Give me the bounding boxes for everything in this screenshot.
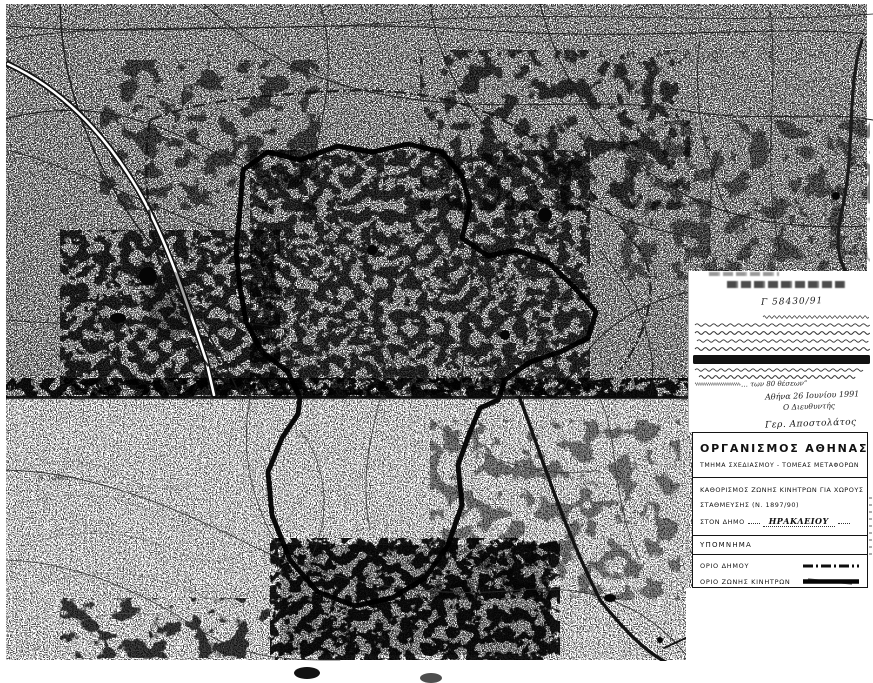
handwritten-fragment: … των 80 θέσεων” — [741, 379, 808, 388]
project-title-line2: ΣΤΑΘΜΕΥΣΗΣ (Ν. 1897/90) — [700, 501, 860, 509]
legend-item-municipal-boundary: ΟΡΙΟ ΔΗΜΟΥ — [700, 562, 860, 570]
illegible-stamp — [727, 281, 845, 288]
legend-org-section: ΟΡΓΑΝΙΣΜΟΣ ΑΘΗΝΑΣ ΤΜΗΜΑ ΣΧΕΔΙΑΣΜΟΥ - ΤΟΜ… — [693, 433, 867, 477]
project-title-line1: ΚΑΘΟΡΙΣΜΟΣ ΖΩΝΗΣ ΚΙΝΗΤΡΩΝ ΓΙΑ ΧΩΡΟΥΣ — [700, 486, 860, 494]
dotted-leader — [838, 516, 850, 524]
dash-dot-line-sample — [802, 562, 860, 570]
left-margin — [0, 0, 6, 683]
sheet-seam-line — [0, 396, 690, 399]
blacked-out-line — [693, 355, 870, 364]
note-date: Αθήνα 26 Ιουνίου 1991 — [765, 389, 860, 401]
illegible-stamp-line — [709, 272, 779, 276]
district-label-amaroussi: Α Μ Α Ρ Ο Υ Σ Ι — [598, 50, 807, 61]
legend-heading-section: ΥΠΟΜΝΗΜΑ — [693, 536, 867, 554]
director-signature: Γερ. Αποστολάτος — [765, 417, 857, 430]
solid-thick-line-sample — [802, 577, 860, 586]
protocol-number: Γ 58430/91 — [761, 296, 823, 308]
legend-item-label: ΟΡΙΟ ΔΗΜΟΥ — [700, 562, 749, 570]
note-signoff: Ο Διευθυντής — [783, 401, 835, 412]
dotted-leader — [748, 516, 760, 524]
legend-item-label: ΟΡΙΟ ΖΩΝΗΣ ΚΙΝΗΤΡΩΝ — [700, 578, 790, 586]
edge-tick-marks — [869, 497, 872, 557]
organization-title: ΟΡΓΑΝΙΣΜΟΣ ΑΘΗΝΑΣ — [700, 442, 860, 455]
scanned-map-sheet: Α Μ Α Ρ Ο Υ Σ Ι Ν. Ιωνία Γ 58430/91 … τω… — [0, 0, 873, 683]
legend-items-section: ΟΡΙΟ ΔΗΜΟΥ ΟΡΙΟ ΖΩΝΗΣ ΚΙΝΗΤΡΩΝ — [693, 555, 867, 586]
district-label-n-ionia: Ν. Ιωνία — [38, 474, 69, 482]
approval-note: Γ 58430/91 … των 80 θέσεων” Αθήνα 26 Ιου… — [688, 271, 873, 432]
municipality-name: ΗΡΑΚΛΕΙΟΥ — [763, 516, 835, 527]
legend-heading: ΥΠΟΜΝΗΜΑ — [700, 541, 860, 549]
top-margin — [0, 0, 873, 4]
legend-item-zone-boundary: ΟΡΙΟ ΖΩΝΗΣ ΚΙΝΗΤΡΩΝ — [700, 577, 860, 586]
department-subtitle: ΤΜΗΜΑ ΣΧΕΔΙΑΣΜΟΥ - ΤΟΜΕΑΣ ΜΕΤΑΦΟΡΩΝ — [700, 462, 860, 469]
legend-project-section: ΚΑΘΟΡΙΣΜΟΣ ΖΩΝΗΣ ΚΙΝΗΤΡΩΝ ΓΙΑ ΧΩΡΟΥΣ ΣΤΑ… — [693, 478, 867, 535]
legend: ΟΡΓΑΝΙΣΜΟΣ ΑΘΗΝΑΣ ΤΜΗΜΑ ΣΧΕΔΙΑΣΜΟΥ - ΤΟΜ… — [692, 432, 868, 588]
municipality-label: ΣΤΟΝ ΔΗΜΟ — [700, 518, 745, 526]
